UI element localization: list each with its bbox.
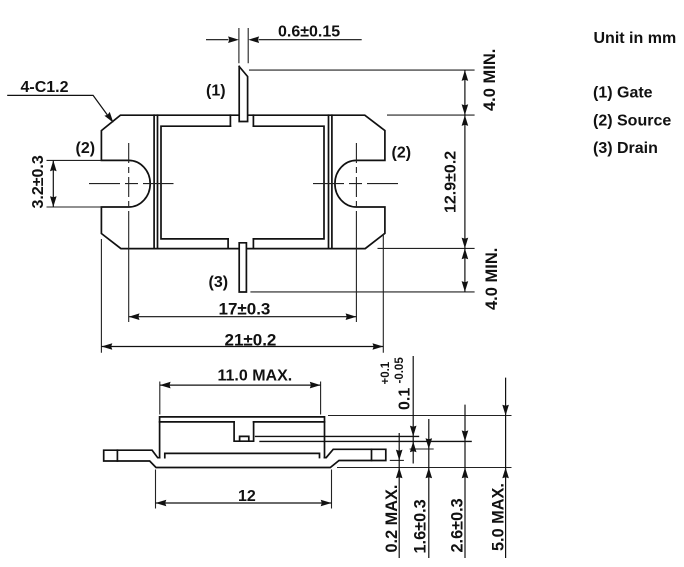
- svg-text:1.6±0.3: 1.6±0.3: [412, 499, 430, 553]
- svg-text:17±0.3: 17±0.3: [219, 300, 271, 319]
- svg-text:0.1: 0.1: [397, 388, 414, 410]
- svg-text:4.0 MIN.: 4.0 MIN.: [481, 49, 499, 111]
- svg-text:0.2 MAX.: 0.2 MAX.: [383, 485, 401, 553]
- svg-text:0.6±0.15: 0.6±0.15: [278, 24, 340, 41]
- svg-text:2.6±0.3: 2.6±0.3: [449, 498, 467, 552]
- svg-text:-0.05: -0.05: [394, 357, 406, 384]
- svg-text:(2) Source: (2) Source: [593, 112, 671, 129]
- svg-text:(1): (1): [206, 82, 226, 99]
- svg-text:12.9±0.2: 12.9±0.2: [443, 151, 460, 213]
- svg-text:4.0 MIN.: 4.0 MIN.: [483, 248, 501, 310]
- svg-text:21±0.2: 21±0.2: [225, 331, 277, 350]
- svg-text:+0.1: +0.1: [380, 361, 392, 384]
- svg-text:(1) Gate: (1) Gate: [593, 85, 653, 102]
- svg-text:(3): (3): [209, 274, 229, 291]
- svg-text:4-C1.2: 4-C1.2: [21, 79, 69, 96]
- svg-text:(3) Drain: (3) Drain: [593, 140, 658, 157]
- svg-text:(2): (2): [76, 140, 96, 157]
- svg-text:11.0 MAX.: 11.0 MAX.: [218, 368, 293, 385]
- svg-text:12: 12: [238, 488, 256, 505]
- svg-text:5.0 MAX.: 5.0 MAX.: [490, 483, 508, 551]
- svg-text:3.2±0.3: 3.2±0.3: [30, 155, 47, 208]
- svg-text:Unit in mm: Unit in mm: [594, 30, 677, 47]
- svg-text:(2): (2): [392, 145, 412, 162]
